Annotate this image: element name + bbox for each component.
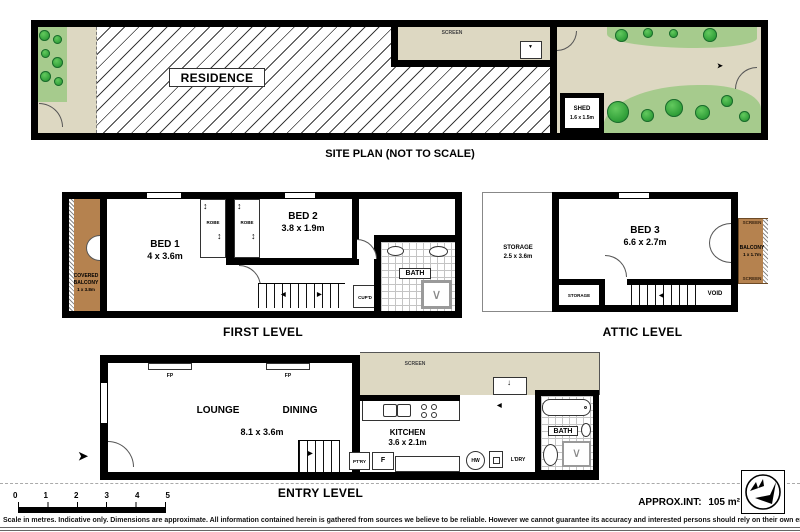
bush-icon (39, 30, 50, 41)
covered-balcony-label2: BALCONY (73, 280, 99, 286)
scale-tick-label: 5 (166, 491, 170, 500)
bush-icon (52, 57, 63, 68)
bush-icon (607, 101, 629, 123)
hot-water-label: HW (467, 458, 484, 464)
scale-tick-label: 4 (135, 491, 139, 500)
hot-water-unit: HW (466, 451, 485, 470)
cupboard-label: CUP'D (354, 295, 376, 300)
dining-label: DINING (265, 405, 335, 417)
kitchen-label: KITCHEN (360, 428, 455, 438)
disclaimer-rule-1 (0, 527, 800, 528)
attic-stairs (631, 285, 699, 305)
bush-icon (739, 111, 750, 122)
fireplace-right-label: FP (274, 373, 302, 379)
shed-label: SHED (565, 106, 599, 113)
bush-icon (665, 99, 683, 117)
covered-balcony-label1: COVERED (73, 273, 99, 279)
rear-garden-top (607, 27, 757, 48)
bed2-window (285, 192, 315, 199)
bath-label-box: BATH (399, 268, 431, 279)
kitchen-sink-icon (383, 404, 397, 417)
void-label: VOID (699, 291, 731, 298)
scale-tick-label: 0 (13, 491, 17, 500)
bed1-label: BED 1 (125, 239, 205, 251)
bed2-label: BED 2 (263, 211, 343, 223)
residence-block: RESIDENCE SCREEN ▼ (97, 27, 557, 133)
front-garden (38, 27, 67, 102)
bed2-bottom-wall (234, 258, 354, 265)
robe-right-slider-icon: ↕ (251, 232, 256, 241)
entry-courtyard: SCREEN ↓ (360, 352, 600, 395)
first-level-bathroom: BATH ∨ (374, 235, 455, 311)
bed3-size-label: 6.6 x 2.7m (595, 237, 695, 248)
bush-icon (721, 95, 733, 107)
scale-numbers: 0 1 2 3 4 5 (13, 491, 170, 500)
laundry-tub-icon (489, 451, 503, 468)
pantry: PT'RY (349, 452, 370, 470)
bush-icon (643, 28, 653, 38)
attic-balcony-label: BALCONY (739, 245, 765, 251)
attic-balcony-size: 1 x 1.7m (739, 252, 765, 257)
bush-icon (615, 29, 628, 42)
fridge-label: F (373, 457, 393, 465)
robe-left-label: ROBE (201, 220, 225, 225)
attic-screen-bottom-label: SCREEN (739, 276, 765, 281)
attic-stairs-arrow-icon: ◀ (659, 293, 664, 299)
attic-storage-small: STORAGE (559, 279, 605, 305)
bath-label: BATH (400, 270, 430, 278)
floorplan-page: ➤ RESIDENCE SCREEN ▼ (0, 0, 800, 532)
bed-divider-wall (226, 199, 234, 265)
attic-storage-small-label: STORAGE (559, 293, 599, 298)
bed3-door-arc (605, 255, 627, 277)
entry-stairs (298, 440, 340, 472)
site-plan: ➤ RESIDENCE SCREEN ▼ (31, 20, 768, 140)
laundry-label: L'DRY (504, 457, 532, 463)
front-path (67, 27, 97, 133)
bath-shower-icon: ∨ (562, 441, 591, 467)
first-level-stairs (258, 283, 345, 308)
gate-door-arc (39, 103, 63, 127)
north-compass (741, 470, 785, 514)
fridge: F (372, 452, 394, 470)
bath-toilet-icon (543, 444, 558, 466)
shed-size-label: 1.6 x 1.5m (565, 115, 599, 121)
approx-area: APPROX.INT: 105 m² (610, 497, 740, 508)
courtyard-stairs-arrow-icon: ↓ (507, 379, 511, 387)
entry-room: FP FP LOUNGE DINING 8.1 x 3.6m ▶ (100, 355, 360, 480)
shower-icon: ∨ (421, 280, 452, 309)
pantry-label: PT'RY (350, 459, 369, 464)
entry-stairs-arrow-icon: ▶ (308, 451, 313, 457)
lounge-dining-size: 8.1 x 3.6m (217, 427, 307, 438)
kitchen-sink-icon (397, 404, 411, 417)
scale-tick-label: 1 (44, 491, 48, 500)
robe-left: ROBE ↕ ↕ (200, 199, 226, 258)
scale-bar (18, 507, 166, 513)
rear-garden-bottom (603, 85, 761, 133)
toilet-icon (429, 246, 448, 257)
first-level-title: FIRST LEVEL (178, 325, 348, 339)
bed1-window (147, 192, 181, 199)
front-entry-arrow-icon: ➤ (78, 450, 88, 462)
site-courtyard: SCREEN ▼ (391, 27, 550, 67)
attic-balcony-door-lower (709, 243, 731, 263)
site-plan-title: SITE PLAN (NOT TO SCALE) (250, 148, 550, 161)
site-screen-label: SCREEN (422, 30, 482, 36)
robe-left-slider-icon: ↕ (217, 232, 222, 241)
sink-icon (387, 246, 404, 256)
entry-bathroom: BATH ∨ (535, 390, 599, 476)
robe-right-slider-icon: ↕ (237, 202, 242, 211)
fireplace-left (148, 363, 192, 370)
stairs-arrow-left-icon: ◀ (281, 292, 286, 298)
attic-storage-label: STORAGE (483, 245, 553, 252)
bathtub-icon (542, 399, 591, 416)
entry-level-title: ENTRY LEVEL (238, 486, 403, 500)
covered-balcony-size: 1 x 3.8m (73, 287, 99, 292)
attic-storage-area: STORAGE 2.5 x 3.6m (482, 192, 554, 312)
entry-bath-label: BATH (549, 428, 577, 436)
lounge-label: LOUNGE (183, 405, 253, 417)
entry-screen-label: SCREEN (390, 361, 440, 367)
balcony-screen-strip (69, 199, 74, 311)
disclaimer-rule-2 (0, 530, 800, 531)
rear-yard: SHED 1.6 x 1.5m ➤ (557, 27, 761, 133)
bush-icon (53, 35, 62, 44)
bush-icon (703, 28, 717, 42)
robe-right: ROBE ↕ ↕ (234, 199, 260, 258)
attic-screen-top-label: SCREEN (739, 220, 765, 225)
approx-label: APPROX.INT: (638, 497, 701, 508)
attic-window (619, 192, 649, 199)
robe-left-slider-icon: ↕ (203, 202, 208, 211)
scale-tick-label: 3 (105, 491, 109, 500)
bed2-size-label: 3.8 x 1.9m (263, 223, 343, 234)
bed1-size-label: 4 x 3.6m (125, 251, 205, 262)
footer-dashed-line (0, 483, 800, 484)
rear-gate-arc (735, 67, 757, 89)
entry-window-left (100, 383, 108, 423)
site-stairs-arrow-icon: ▼ (528, 45, 533, 50)
rear-arrow-icon: ➤ (717, 63, 723, 70)
attic-level-title: ATTIC LEVEL (565, 325, 720, 339)
entry-door-arc (108, 441, 134, 467)
attic-storage-size: 2.5 x 3.6m (483, 254, 553, 261)
entry-bottom-wall (100, 472, 599, 480)
fireplace-left-label: FP (156, 373, 184, 379)
bush-icon (41, 49, 50, 58)
robe-right-label: ROBE (235, 220, 259, 225)
bush-icon (641, 109, 654, 122)
bed3-label: BED 3 (595, 225, 695, 237)
first-level-plan: COVERED BALCONY 1 x 3.8m BED 1 4 x 3.6m … (62, 192, 462, 318)
bush-icon (40, 71, 51, 82)
approx-value: 105 m² (708, 497, 740, 508)
scale-tick-label: 2 (74, 491, 78, 500)
front-gate-area (38, 102, 67, 133)
bath-sink-icon (581, 423, 591, 437)
attic-plan: BED 3 6.6 x 2.7m STORAGE ◀ VOID (552, 192, 738, 312)
residence-label-box: RESIDENCE (169, 68, 265, 87)
fireplace-right (266, 363, 310, 370)
rear-door-arc (557, 31, 577, 51)
bush-icon (695, 105, 710, 120)
shed: SHED 1.6 x 1.5m (560, 93, 604, 133)
balcony-wall (100, 199, 107, 311)
bush-icon (669, 29, 678, 38)
kitchen-size-label: 3.6 x 2.1m (360, 438, 455, 448)
entry-bath-label-box: BATH (548, 426, 578, 436)
north-arrow-icon (742, 471, 784, 513)
corridor-arrow-icon: ◀ (497, 403, 502, 409)
disclaimer-text: Scale in metres. Indicative only. Dimens… (3, 517, 797, 524)
stove-icon (419, 403, 445, 419)
stairs-arrow-right-icon: ▶ (317, 292, 322, 298)
kitchen-bench-bottom (395, 456, 460, 472)
attic-balcony: SCREEN BALCONY 1 x 1.7m SCREEN (738, 218, 768, 284)
attic-balcony-door-upper (709, 223, 731, 243)
attic-balcony-screen-strip (763, 219, 768, 283)
kitchen-bench-top (362, 401, 460, 421)
residence-label: RESIDENCE (170, 71, 264, 85)
bush-icon (54, 77, 63, 86)
